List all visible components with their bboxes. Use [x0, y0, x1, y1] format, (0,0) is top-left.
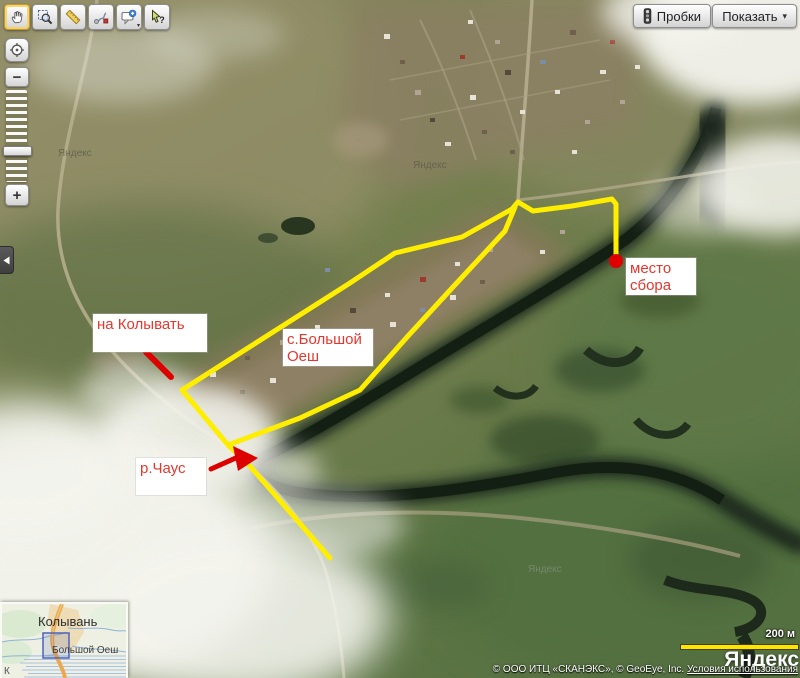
locate-button[interactable]	[5, 38, 29, 62]
label-text: р.Чаус	[140, 460, 202, 477]
map-label-r-chaus: р.Чаус	[136, 458, 206, 495]
yandex-maps-window: Яндекс Яндекс Яндекс на Колывать с.Больш…	[0, 0, 800, 678]
show-dropdown-button[interactable]: Показать ▾	[712, 4, 797, 28]
measure-tool-button[interactable]	[60, 4, 86, 30]
magnifier-icon	[37, 9, 53, 25]
chevron-down-icon: ▾	[137, 23, 140, 29]
map-label-bolshoy-oesh: с.Большой Оеш	[283, 329, 373, 366]
zoom-out-button[interactable]: −	[5, 67, 29, 87]
attribution-providers: © ООО ИТЦ «СКАНЭКС», © GeoEye, Inc.	[493, 664, 684, 675]
meeting-point-marker	[609, 254, 623, 268]
pan-tool-button[interactable]	[4, 4, 30, 30]
label-text: Оеш	[287, 348, 369, 365]
svg-text:?: ?	[159, 15, 165, 25]
label-text: сбора	[630, 277, 692, 294]
zoom-slider-track[interactable]	[6, 90, 27, 182]
map-watermark: Яндекс	[528, 564, 562, 575]
zoom-in-button[interactable]: +	[5, 184, 29, 206]
minus-icon: −	[13, 69, 22, 86]
label-text: на Колывать	[97, 316, 203, 333]
map-label-mesto-sbora: место сбора	[626, 258, 696, 295]
label-text: место	[630, 260, 692, 277]
route-tool-button[interactable]	[88, 4, 114, 30]
overview-minimap[interactable]: Колывань Большой Оеш К	[0, 602, 128, 678]
traffic-button-label: Пробки	[657, 9, 701, 24]
add-comment-tool-button[interactable]: ▾	[116, 4, 142, 30]
map-watermark: Яндекс	[58, 148, 92, 159]
target-icon	[9, 42, 25, 58]
terms-of-use-link[interactable]: Условия использования	[687, 664, 798, 675]
hand-icon	[9, 9, 25, 25]
zoom-selection-tool-button[interactable]	[32, 4, 58, 30]
traffic-button[interactable]: Пробки	[633, 4, 711, 28]
minimap-canvas	[2, 604, 126, 678]
comment-plus-icon	[121, 9, 137, 25]
scale-label: 200 м	[765, 628, 795, 640]
whats-here-tool-button[interactable]: ?	[144, 4, 170, 30]
cursor-question-icon: ?	[149, 9, 165, 25]
zoom-slider-handle[interactable]	[3, 146, 32, 156]
label-text: с.Большой	[287, 331, 369, 348]
map-watermark: Яндекс	[413, 160, 447, 171]
attribution: © ООО ИТЦ «СКАНЭКС», © GeoEye, Inc. Усло…	[493, 664, 798, 675]
plus-icon: +	[13, 187, 22, 204]
ruler-icon	[65, 9, 81, 25]
traffic-light-icon	[643, 8, 652, 24]
show-button-label: Показать	[722, 9, 777, 24]
minimap-floodplain-hatch	[20, 656, 126, 677]
chevron-left-icon	[3, 256, 10, 265]
collapse-panel-button[interactable]	[0, 246, 14, 274]
map-label-na-kolyvat: на Колывать	[93, 314, 207, 352]
minimap-viewport-rect[interactable]	[43, 633, 69, 658]
chevron-down-icon: ▾	[782, 11, 787, 22]
route-icon	[93, 9, 109, 25]
